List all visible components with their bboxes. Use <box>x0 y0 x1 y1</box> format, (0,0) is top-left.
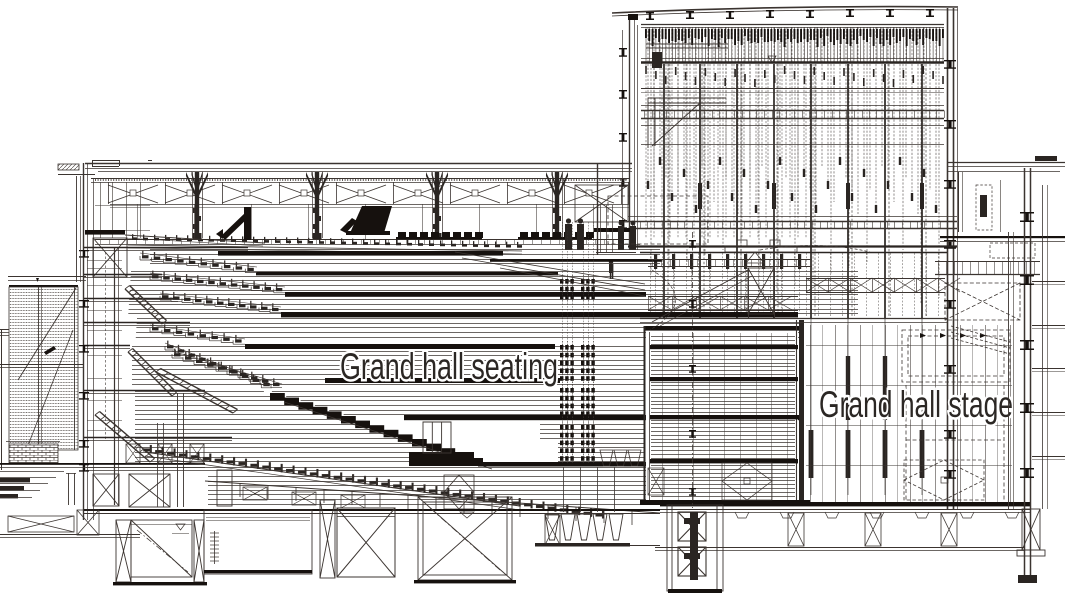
svg-text:Grand hall stage: Grand hall stage <box>819 384 1013 425</box>
svg-text:Grand hall seating: Grand hall seating <box>340 346 558 387</box>
